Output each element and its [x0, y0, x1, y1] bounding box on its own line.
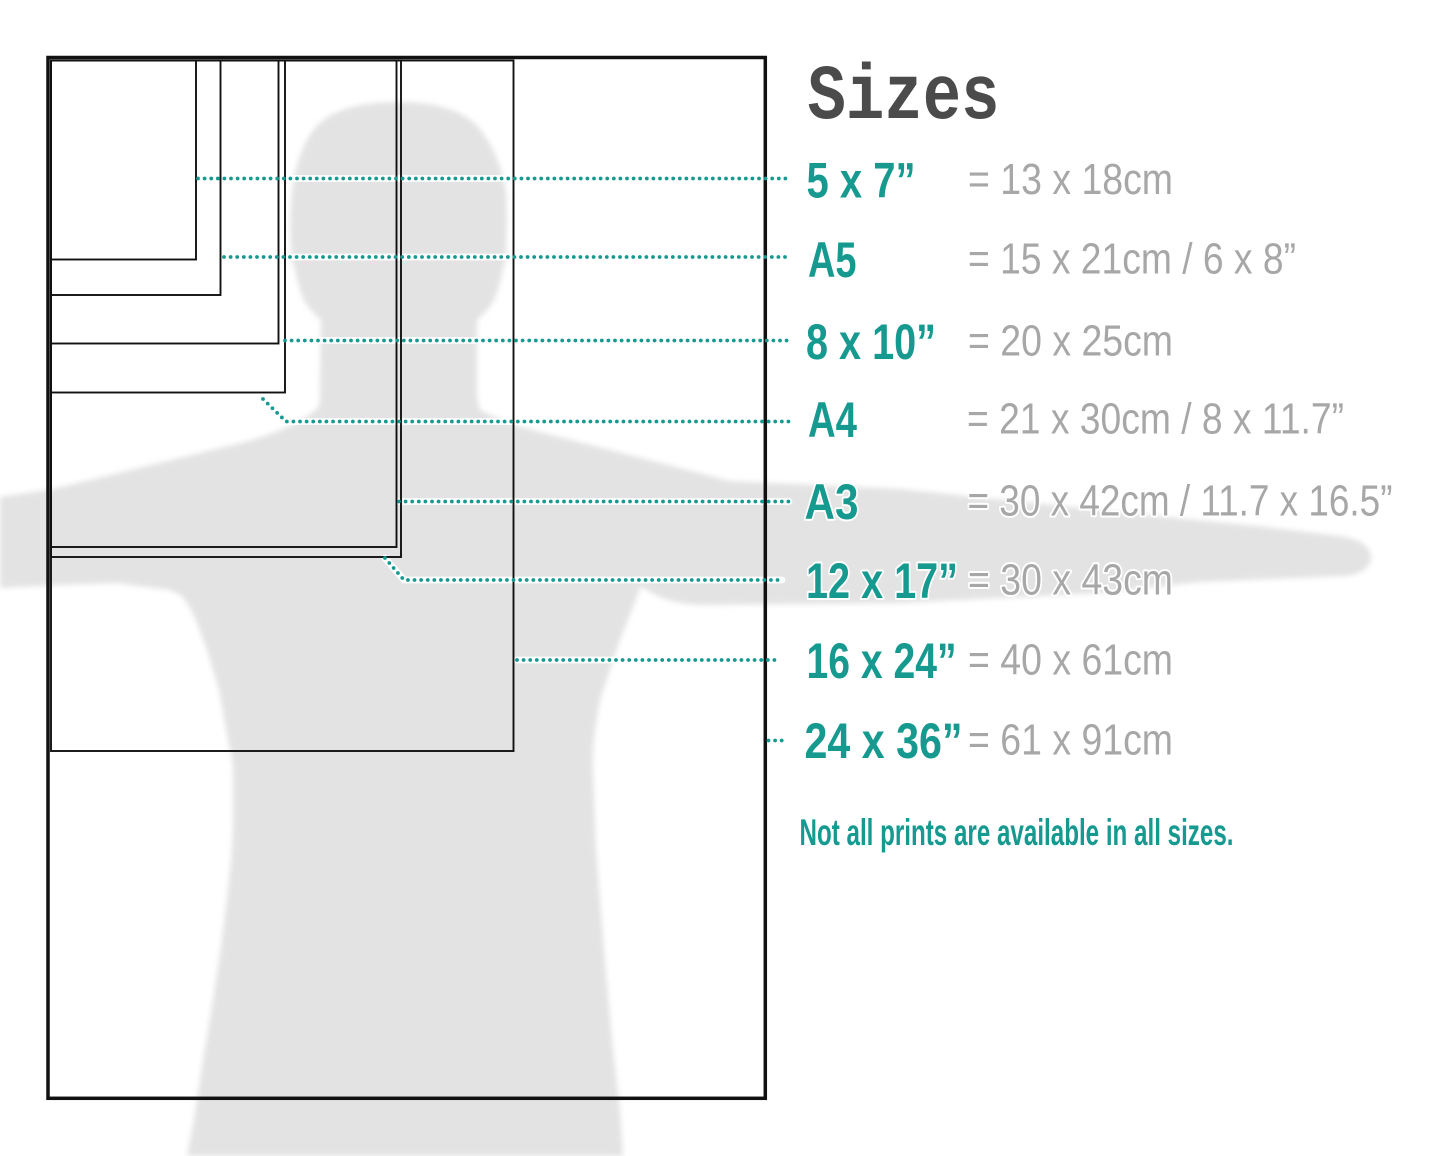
- svg-text:A3: A3: [805, 474, 859, 530]
- svg-text:= 30 x 43cm: = 30 x 43cm: [968, 557, 1173, 605]
- svg-text:8 x 10”: 8 x 10”: [806, 314, 936, 370]
- svg-text:= 21 x 30cm / 8 x 11.7”: = 21 x 30cm / 8 x 11.7”: [967, 396, 1344, 444]
- svg-text:= 30 x 42cm / 11.7 x 16.5”: = 30 x 42cm / 11.7 x 16.5”: [968, 478, 1393, 526]
- svg-text:Not all prints are available i: Not all prints are available in all size…: [800, 812, 1234, 853]
- svg-text:A5: A5: [808, 232, 857, 288]
- svg-text:= 20 x 25cm: = 20 x 25cm: [968, 318, 1173, 366]
- svg-text:= 13 x 18cm: = 13 x 18cm: [968, 156, 1173, 204]
- svg-text:16 x 24”: 16 x 24”: [807, 633, 957, 689]
- svg-text:= 61 x 91cm: = 61 x 91cm: [968, 717, 1173, 765]
- svg-text:24 x 36”: 24 x 36”: [805, 713, 963, 769]
- svg-text:12 x 17”: 12 x 17”: [806, 553, 958, 609]
- svg-text:= 40 x 61cm: = 40 x 61cm: [968, 637, 1173, 685]
- svg-text:A4: A4: [808, 392, 857, 448]
- svg-text:Sizes: Sizes: [808, 54, 1000, 142]
- svg-text:5 x 7”: 5 x 7”: [807, 153, 916, 209]
- svg-text:= 15 x 21cm / 6 x 8”: = 15 x 21cm / 6 x 8”: [968, 236, 1296, 284]
